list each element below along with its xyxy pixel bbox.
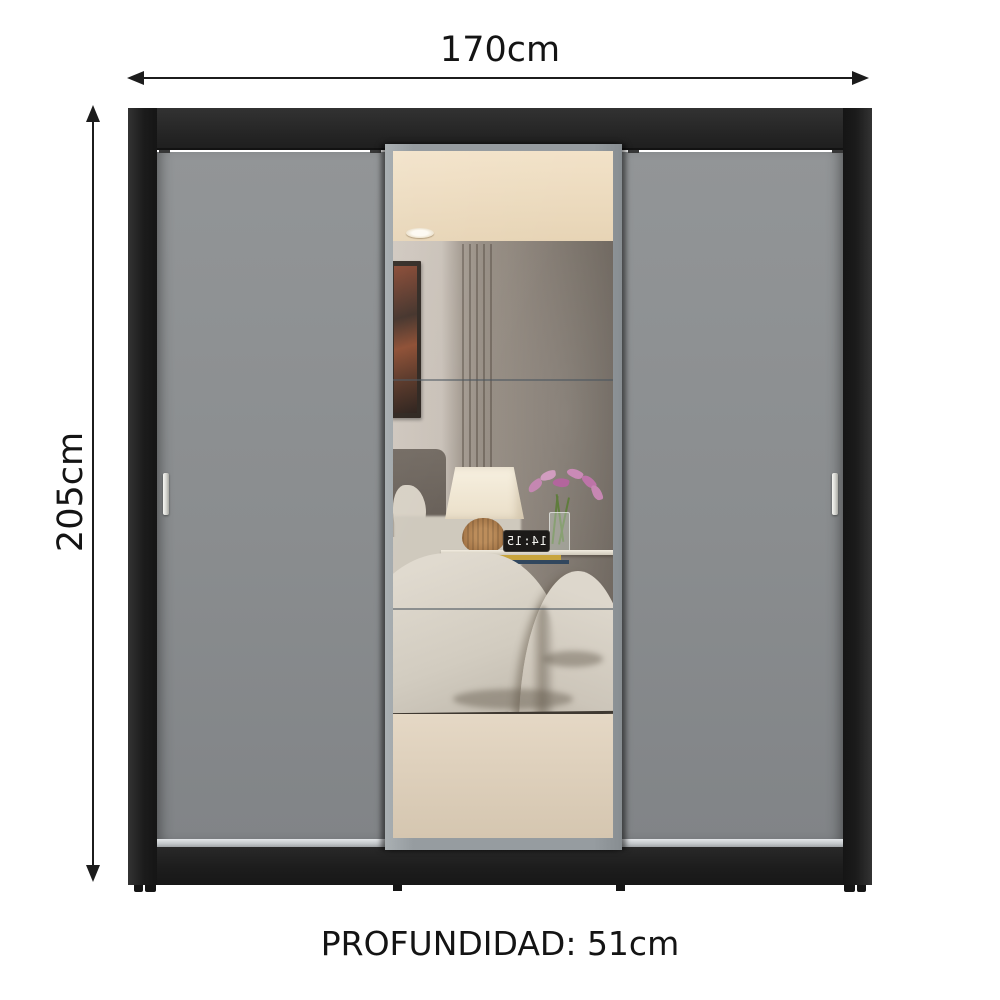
mirror-door: 14:15 [385,144,622,850]
sliding-door-left [157,152,385,839]
depth-dimension-label: PROFUNDIDAD: 51cm [0,924,1000,963]
door-hanger-mark [832,150,843,153]
arrow-down-icon [86,865,100,882]
wardrobe-foot [616,885,625,891]
door-hanger-mark [159,150,170,153]
wardrobe-foot [145,885,156,892]
wardrobe-foot [393,885,402,891]
sliding-door-right [615,152,843,839]
product-dimension-diagram: 170cm 205cm [0,0,1000,1000]
wardrobe-right-frame [843,108,872,885]
door-hanger-mark [628,150,639,153]
height-arrow-line [92,119,94,868]
arrow-right-icon [852,71,869,85]
width-arrow-line [141,77,855,79]
width-dimension-arrow [127,71,869,85]
wardrobe-left-frame [128,108,157,885]
wardrobe-foot [844,885,855,892]
wardrobe-base-plinth [148,845,852,885]
door-handle-left [163,473,169,515]
wardrobe-foot [134,885,143,892]
height-dimension-arrow [86,105,100,882]
door-handle-right [832,473,838,515]
wardrobe: 14:15 [128,108,872,885]
wardrobe-foot [857,885,866,892]
mirror-sheen [393,151,613,838]
mirror-glass: 14:15 [393,151,613,838]
door-hanger-mark [370,150,381,153]
width-dimension-label: 170cm [128,30,872,70]
